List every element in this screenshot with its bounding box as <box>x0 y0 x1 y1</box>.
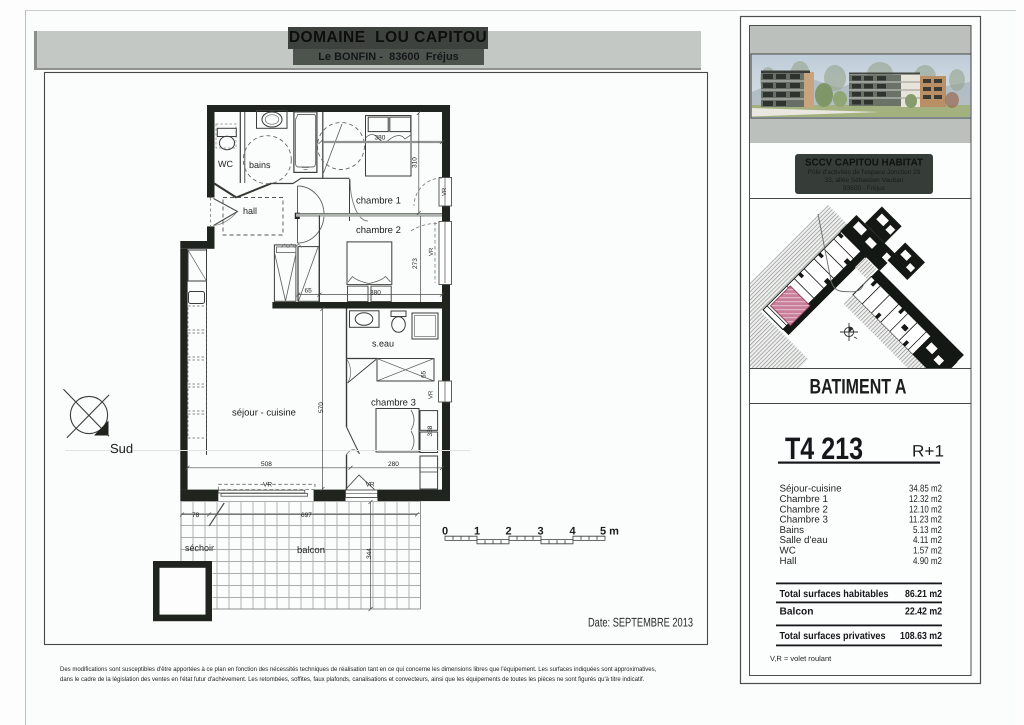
svg-text:338: 338 <box>427 425 434 436</box>
svg-text:VR: VR <box>428 247 435 256</box>
svg-text:BATIMENT A: BATIMENT A <box>810 376 907 399</box>
svg-text:11.23 m2: 11.23 m2 <box>909 515 942 526</box>
svg-text:WC: WC <box>780 546 796 557</box>
svg-text:séjour - cuisine: séjour - cuisine <box>232 408 296 419</box>
svg-text:22.42 m2: 22.42 m2 <box>905 607 942 618</box>
svg-text:V,R = volet roulant: V,R = volet roulant <box>770 654 832 663</box>
svg-text:chambre 2: chambre 2 <box>356 225 401 236</box>
svg-text:Hall: Hall <box>780 556 797 567</box>
svg-text:34.85 m2: 34.85 m2 <box>909 484 942 495</box>
svg-text:Chambre 1: Chambre 1 <box>780 494 828 505</box>
svg-text:83600 - Fréjus: 83600 - Fréjus <box>843 185 886 192</box>
svg-text:hall: hall <box>243 206 257 216</box>
svg-text:Séjour-cuisine: Séjour-cuisine <box>780 484 843 495</box>
svg-text:SCCV CAPITOU HABITAT: SCCV CAPITOU HABITAT <box>805 158 923 169</box>
svg-text:chambre 1: chambre 1 <box>356 196 401 207</box>
svg-text:R+1: R+1 <box>912 443 944 461</box>
svg-text:WC: WC <box>218 159 233 169</box>
svg-text:1.57 m2: 1.57 m2 <box>913 546 942 557</box>
svg-text:570: 570 <box>318 402 325 413</box>
svg-text:4.90 m2: 4.90 m2 <box>913 556 942 567</box>
svg-text:33, allée Sébastien Vauban: 33, allée Sébastien Vauban <box>824 177 903 184</box>
svg-text:Total surfaces privatives: Total surfaces privatives <box>780 631 886 642</box>
svg-text:273: 273 <box>412 258 419 269</box>
svg-text:bains: bains <box>249 160 271 170</box>
svg-text:310: 310 <box>412 157 419 168</box>
svg-text:508: 508 <box>261 461 272 468</box>
svg-text:108.63 m2: 108.63 m2 <box>900 631 942 642</box>
svg-text:balcon: balcon <box>297 545 325 556</box>
svg-text:12.32 m2: 12.32 m2 <box>909 494 942 505</box>
svg-text:T4 213: T4 213 <box>785 431 863 466</box>
svg-text:chambre 3: chambre 3 <box>371 398 416 409</box>
svg-text:Balcon: Balcon <box>780 607 814 618</box>
svg-text:Sud: Sud <box>110 441 133 456</box>
svg-text:344: 344 <box>366 548 373 559</box>
svg-text:5 m: 5 m <box>600 526 619 538</box>
svg-text:280: 280 <box>388 461 399 468</box>
svg-text:VR: VR <box>428 390 435 399</box>
svg-text:2: 2 <box>506 526 512 538</box>
svg-text:Date: SEPTEMBRE 2013: Date: SEPTEMBRE 2013 <box>588 616 693 630</box>
svg-text:86.21 m2: 86.21 m2 <box>905 589 942 600</box>
svg-text:0: 0 <box>442 526 448 538</box>
svg-text:3: 3 <box>538 526 544 538</box>
svg-text:s.eau: s.eau <box>372 339 394 349</box>
svg-text:78: 78 <box>192 512 200 519</box>
svg-text:4: 4 <box>570 526 577 538</box>
svg-text:Total surfaces habitables: Total surfaces habitables <box>780 589 889 600</box>
svg-text:Pôle d'activités de l'espace J: Pôle d'activités de l'espace Jonction 29 <box>808 169 921 176</box>
svg-text:Salle d'eau: Salle d'eau <box>780 535 828 546</box>
svg-text:65: 65 <box>305 288 313 295</box>
svg-text:VR: VR <box>441 187 448 196</box>
svg-text:VR: VR <box>366 482 375 489</box>
svg-text:380: 380 <box>370 290 381 297</box>
svg-text:4.11 m2: 4.11 m2 <box>913 535 942 546</box>
svg-text:65: 65 <box>421 370 428 378</box>
svg-text:VR: VR <box>263 482 272 489</box>
svg-text:Chambre 3: Chambre 3 <box>780 515 829 526</box>
svg-text:697: 697 <box>301 512 312 519</box>
svg-text:380: 380 <box>375 135 386 142</box>
svg-text:1: 1 <box>474 526 480 538</box>
svg-text:séchoir: séchoir <box>185 543 214 553</box>
